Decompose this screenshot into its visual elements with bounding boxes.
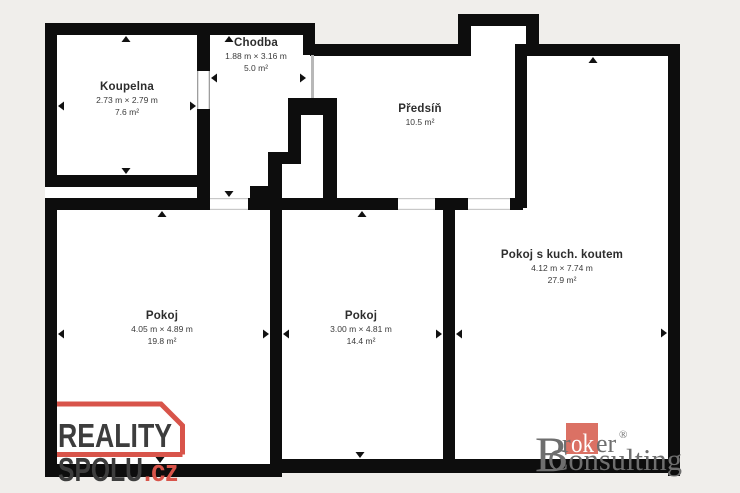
room-dimensions: 1.88 m × 3.16 m — [225, 51, 287, 62]
room-label-koupelna: Koupelna 2.73 m × 2.79 m 7.6 m² — [96, 81, 158, 118]
room-pokoj-kk-floor-lower — [449, 204, 674, 460]
wall-predsin-top-left — [310, 44, 458, 56]
door-chodba-predsin-line — [311, 55, 314, 98]
room-label-pokoj-kk: Pokoj s kuch. koutem 4.12 m × 7.74 m 27.… — [501, 249, 623, 286]
wall-left-upper — [45, 23, 57, 187]
wall-right-outer — [668, 44, 680, 476]
room-area: 14.4 m² — [330, 336, 392, 347]
wall-predsin-right — [515, 44, 527, 208]
door-chodba-pokoj1 — [210, 198, 248, 210]
room-name: Koupelna — [96, 81, 158, 94]
door-threshold-line — [210, 209, 248, 210]
floor-plan-page: REALITY SPOLU .cz B r ok er ® Consulting… — [0, 0, 740, 493]
room-label-chodba: Chodba 1.88 m × 3.16 m 5.0 m² — [225, 37, 287, 74]
door-koupelna-chodba — [197, 71, 210, 109]
room-label-pokoj2: Pokoj 3.00 m × 4.81 m 14.4 m² — [330, 310, 392, 347]
reality-spolu-tld: .cz — [144, 453, 178, 488]
room-name: Pokoj — [330, 310, 392, 323]
broker-registered-icon: ® — [619, 429, 627, 441]
room-name: Pokoj — [131, 310, 193, 323]
wall-gap-strip — [45, 187, 197, 198]
room-label-predsin: Předsíň 10.5 m² — [398, 103, 442, 128]
door-threshold-line — [468, 209, 510, 210]
room-area: 27.9 m² — [501, 275, 623, 286]
room-name: Pokoj s kuch. koutem — [501, 249, 623, 262]
wall-notch-right — [526, 14, 539, 56]
door-edge-line — [197, 71, 198, 109]
wall-pokoj1-pokoj2 — [270, 210, 282, 471]
reality-spolu-line2: SPOLU — [58, 451, 143, 488]
floor-plan-drawing: REALITY SPOLU .cz B r ok er ® Consulting — [0, 0, 740, 493]
door-predsin-pokoj2 — [398, 198, 435, 210]
wall-pokoj2-pokojkk — [443, 210, 455, 460]
room-name: Předsíň — [398, 103, 442, 116]
door-threshold-line — [398, 209, 435, 210]
room-area: 5.0 m² — [225, 63, 287, 74]
room-dimensions: 4.05 m × 4.89 m — [131, 324, 193, 335]
wall-koupelna-bottom — [45, 175, 210, 187]
wall-predsin-top-right — [526, 44, 678, 56]
broker-consulting-word: Consulting — [548, 442, 682, 477]
door-predsin-pokojkk — [468, 198, 510, 210]
door-threshold-line — [398, 198, 435, 199]
room-area: 10.5 m² — [398, 117, 442, 128]
reality-spolu-line1: REALITY — [58, 417, 172, 454]
room-dimensions: 2.73 m × 2.79 m — [96, 95, 158, 106]
room-dimensions: 4.12 m × 7.74 m — [501, 263, 623, 274]
wall-left-lower — [45, 198, 57, 477]
door-edge-line — [209, 71, 210, 109]
door-threshold-line — [468, 198, 510, 199]
room-dimensions: 3.00 m × 4.81 m — [330, 324, 392, 335]
room-area: 7.6 m² — [96, 107, 158, 118]
room-area: 19.8 m² — [131, 336, 193, 347]
door-threshold-line — [210, 198, 248, 199]
room-label-pokoj1: Pokoj 4.05 m × 4.89 m 19.8 m² — [131, 310, 193, 347]
wall-koupelna-chodba — [197, 23, 210, 198]
wall-top-left — [45, 23, 315, 35]
room-name: Chodba — [225, 37, 287, 50]
reality-spolu-logo: REALITY SPOLU .cz — [57, 404, 183, 488]
